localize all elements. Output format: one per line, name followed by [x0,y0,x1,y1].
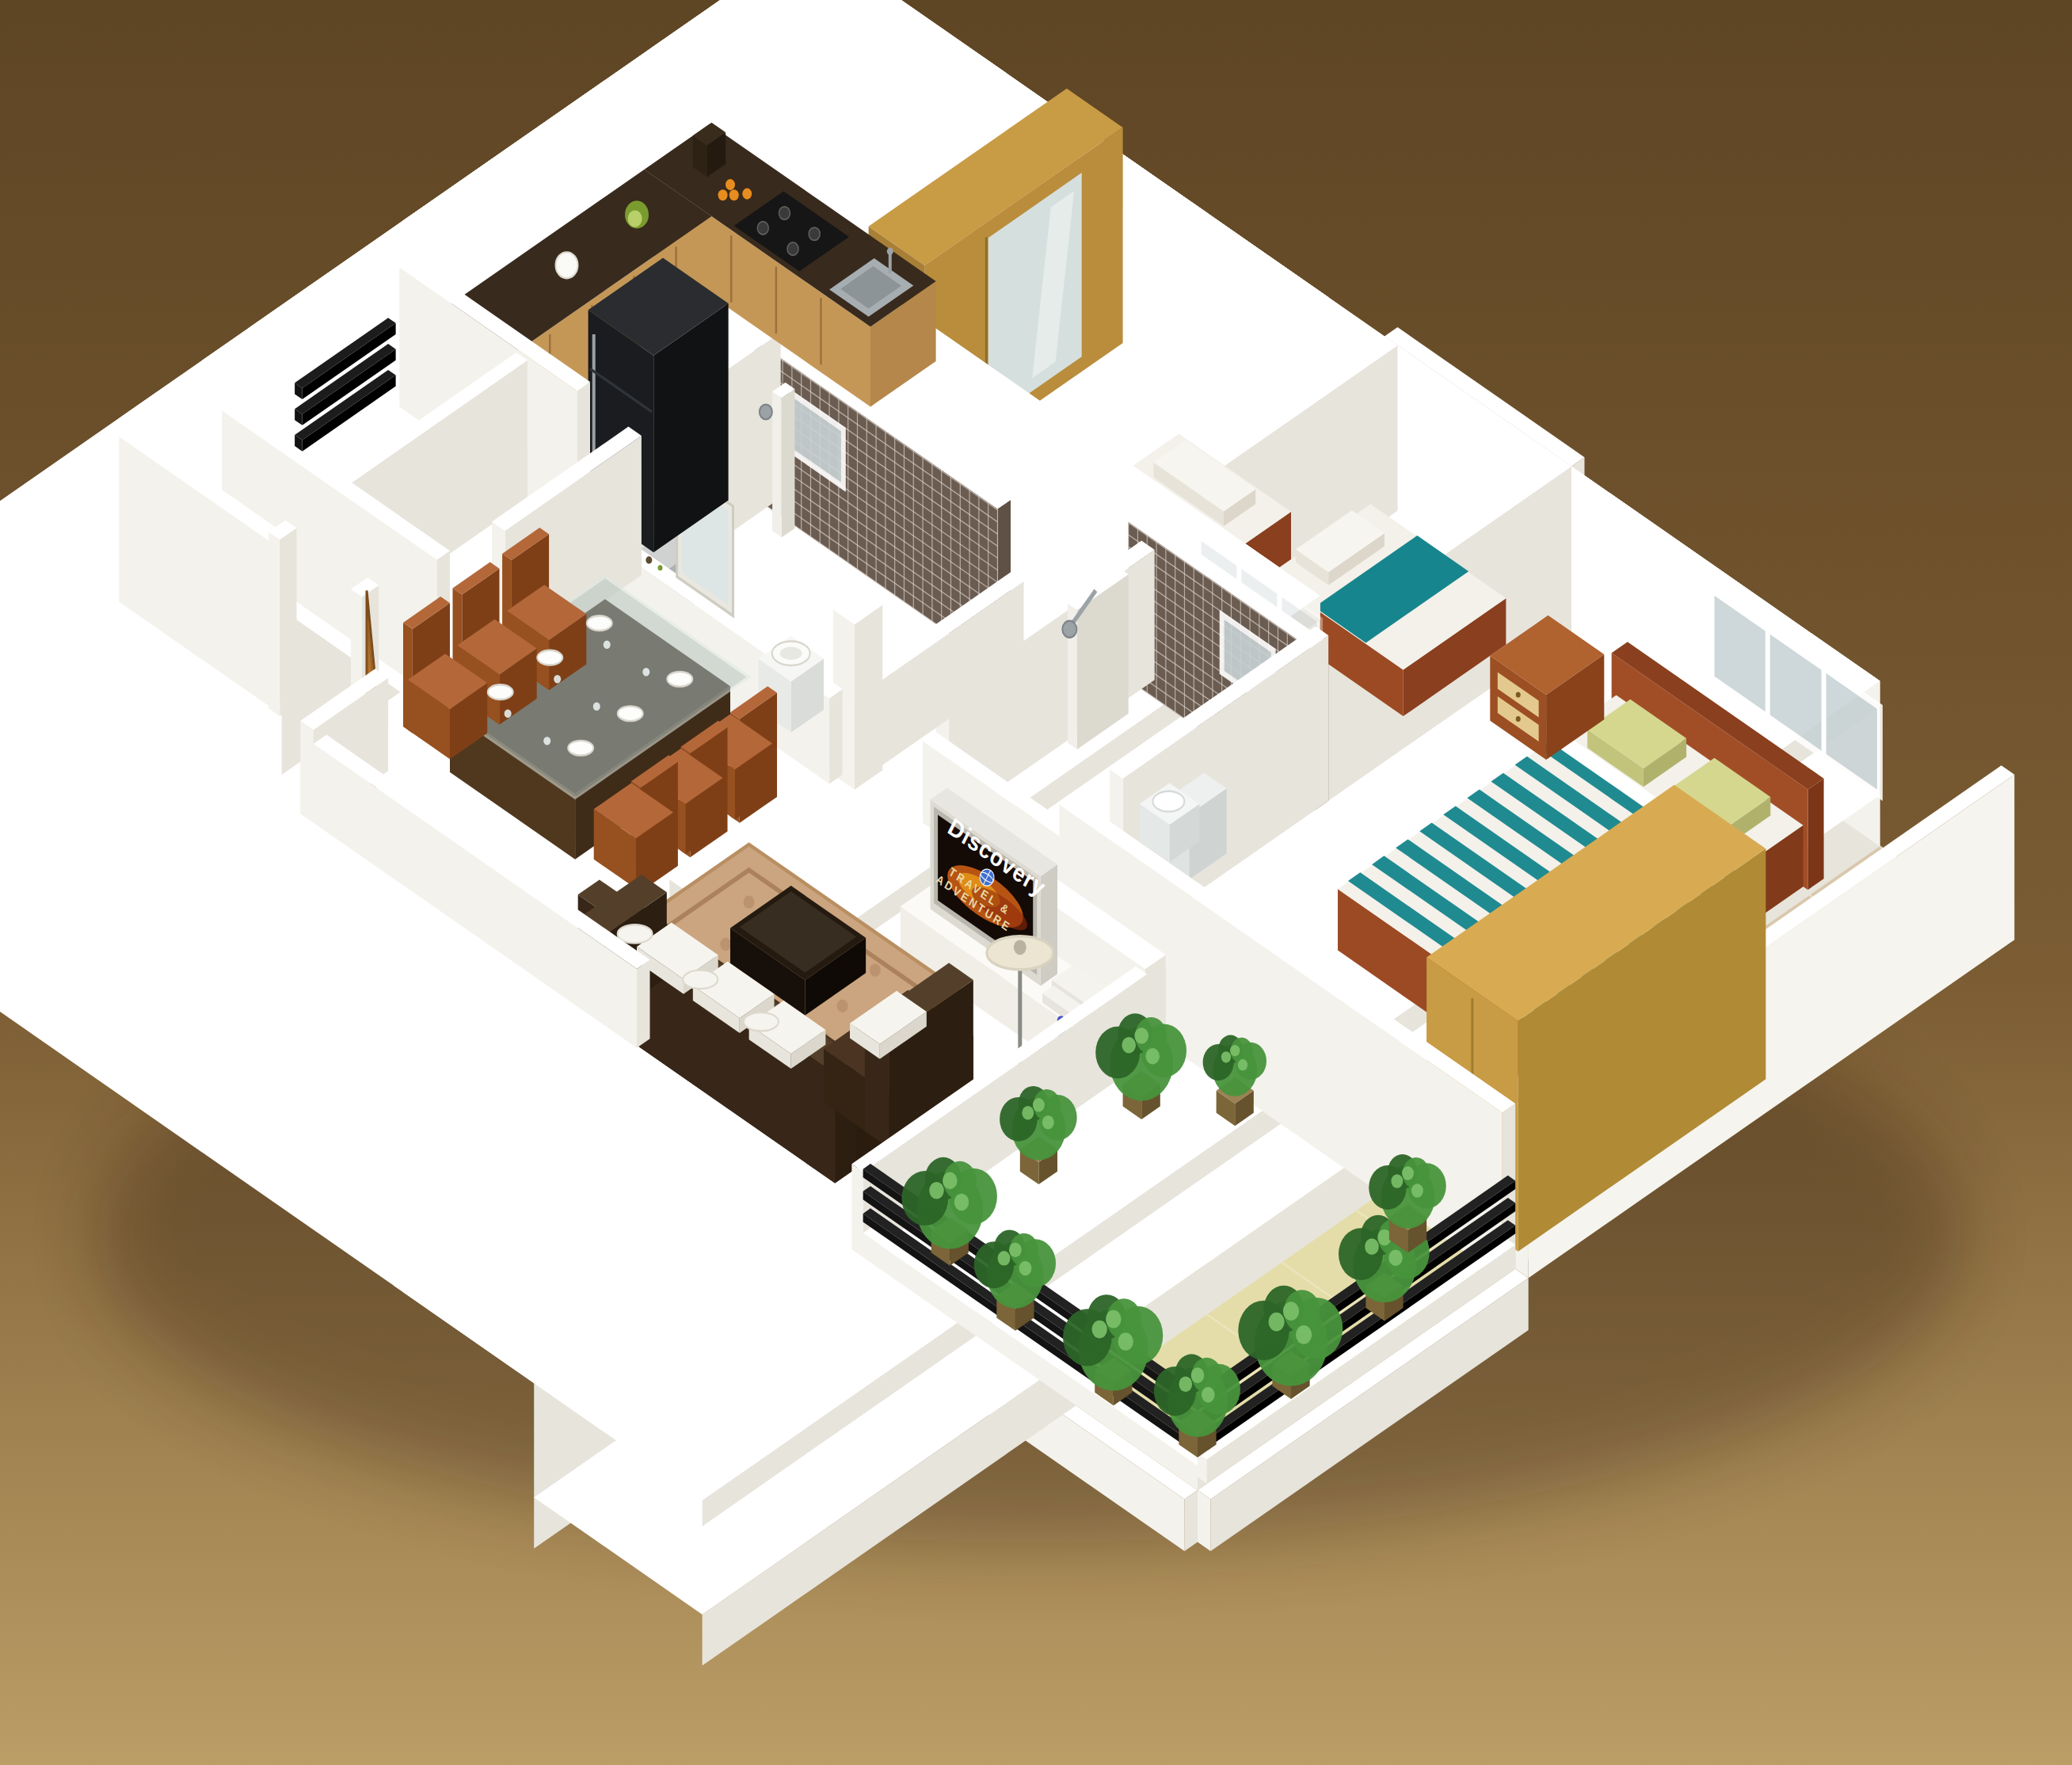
plant-highlight [1145,1048,1160,1065]
burner-1 [809,227,820,240]
plant-highlight [1122,1037,1136,1054]
plant-highlight [1106,1310,1121,1329]
living-south-low-wall-e [637,960,650,1048]
plant-highlight [1092,1321,1107,1339]
dinner-plate [537,650,562,665]
plant-highlight [1202,1387,1215,1403]
sink-basin-inner [780,647,802,660]
drinking-glass [543,737,550,745]
plant-highlight [1388,1249,1403,1266]
floor-slab-balcony-s-e [1185,1490,1198,1551]
shower-head-icon [1062,621,1076,638]
fruit-1 [729,189,739,200]
floorplan-scene: Discovery TRAVEL & ADVENTURE [0,0,2072,1765]
living-west-wall-s [300,721,314,823]
sofa-pillow-2 [683,970,718,989]
door-frame-left-e [280,528,296,717]
plant-highlight [1238,1059,1247,1070]
dinner-plate [618,706,643,721]
bath1-toiletry-2 [658,565,663,570]
burner-0 [779,207,790,219]
lamp-top [1014,940,1026,955]
plant-highlight [1009,1242,1022,1257]
rug-motif-5 [837,1000,848,1012]
plant-highlight [1022,1106,1034,1120]
fruit-3 [742,189,752,200]
plant-highlight [1296,1325,1312,1344]
dish-rack-plate [628,210,642,227]
rug-motif-2 [870,964,881,977]
dinner-plate [568,741,593,756]
plant-highlight [1179,1376,1192,1392]
drinking-glass [604,641,611,650]
burner-3 [787,242,798,255]
plant-highlight [1391,1174,1403,1188]
floor-slab-balcony-e-s [1198,1490,1211,1551]
fruit-0 [726,179,735,190]
plant-highlight [1283,1302,1299,1321]
shower-head-icon [760,405,772,420]
counter-plate [556,252,578,278]
drinking-glass [505,710,512,719]
plant-highlight [1042,1115,1054,1130]
plant-highlight [943,1172,957,1190]
plant-highlight [1019,1261,1032,1276]
drawer-knob-2 [1516,716,1521,722]
plant-highlight [1402,1166,1414,1180]
dinner-plate [667,672,692,687]
plant-highlight [1118,1332,1133,1351]
shower-panel-body-e [782,389,795,537]
drinking-glass [593,703,600,711]
burner-2 [757,222,768,234]
toilet-seat [1152,791,1184,812]
plant-highlight [1134,1027,1148,1044]
plant-highlight [1411,1184,1423,1198]
plant-highlight [1191,1367,1205,1383]
plant-highlight [998,1251,1011,1266]
balcony-west-wall-s [851,1164,863,1257]
plant-highlight [954,1194,969,1211]
drinking-glass [554,675,561,684]
plant-highlight [1230,1045,1240,1056]
drawer-knob-1 [1516,692,1521,697]
sofa-pillow-1 [618,924,653,943]
faucet-icon [887,248,893,255]
drinking-glass [642,668,649,677]
plant-highlight [1365,1238,1379,1255]
floorplan-svg: Discovery TRAVEL & ADVENTURE [0,0,2072,1765]
sofa-pillow-3 [744,1012,779,1031]
plant-highlight [1268,1313,1284,1332]
rug-motif-4 [720,938,731,951]
plant-highlight [929,1182,943,1199]
master-headboard-e [1808,779,1824,890]
shower-panel-body [772,383,794,538]
fruit-2 [718,189,728,200]
door-frame-left [269,520,296,716]
bathroom1-pillar-e [855,605,882,790]
dinner-plate [587,616,612,631]
shower-panel-body-s [772,391,782,537]
door-frame-left-s [269,532,280,716]
bath1-toiletry-1 [646,556,652,563]
plant-highlight [1033,1098,1045,1112]
plant-highlight [1221,1051,1231,1062]
rug-motif-0 [744,895,755,908]
dinner-plate [488,684,513,700]
bathroom1-south-wall-e [829,689,843,783]
